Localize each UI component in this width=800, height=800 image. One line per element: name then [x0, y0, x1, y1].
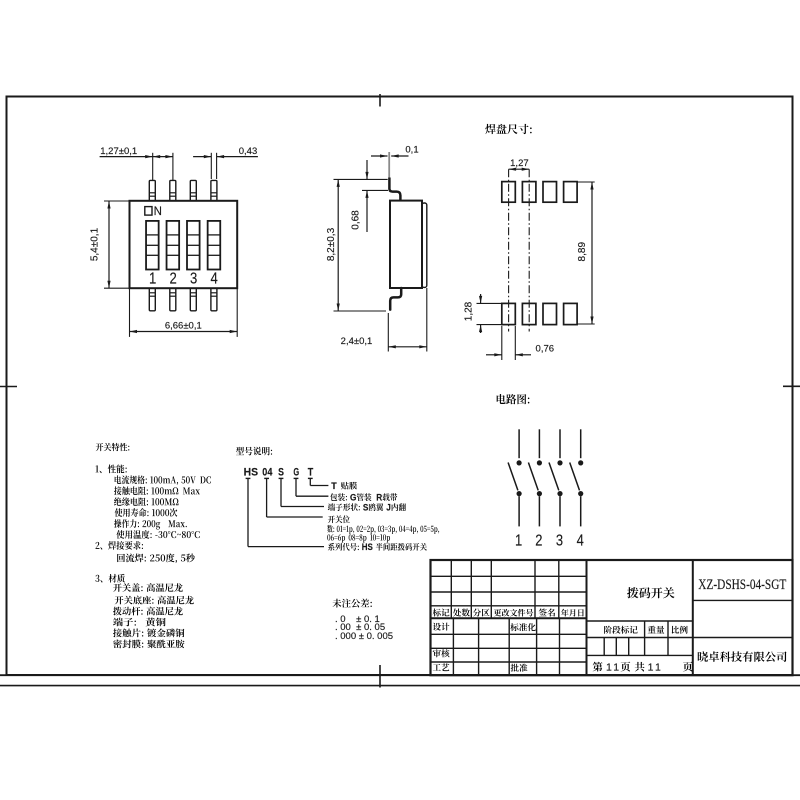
svg-text:8,89: 8,89	[577, 242, 588, 262]
svg-text:1: 1	[648, 661, 654, 673]
svg-text:2,4±0,1: 2,4±0,1	[341, 336, 373, 347]
svg-text:0,43: 0,43	[239, 146, 258, 157]
svg-text:2: 2	[170, 270, 177, 287]
svg-text:T: T	[308, 466, 314, 478]
svg-text:G: G	[350, 492, 357, 502]
svg-text:04: 04	[262, 466, 273, 478]
svg-text:1,28: 1,28	[463, 301, 474, 321]
svg-text:1: 1	[655, 661, 661, 673]
svg-text:XZ-DSHS-04-SGT: XZ-DSHS-04-SGT	[698, 577, 786, 593]
svg-text:3: 3	[190, 270, 197, 287]
svg-text:T: T	[331, 481, 337, 491]
svg-text:4: 4	[577, 532, 584, 549]
svg-text:R: R	[376, 492, 383, 502]
svg-text:1,27±0,1: 1,27±0,1	[100, 146, 137, 157]
svg-text:0,1: 0,1	[405, 145, 418, 156]
svg-text:3: 3	[556, 532, 563, 549]
svg-text:J: J	[386, 502, 391, 512]
svg-text:N: N	[154, 206, 162, 218]
svg-text:S: S	[363, 502, 369, 512]
svg-text:HS: HS	[244, 466, 258, 478]
svg-text:1: 1	[613, 661, 619, 673]
svg-text:2: 2	[535, 532, 542, 549]
svg-text:6,66±0,1: 6,66±0,1	[165, 320, 202, 331]
svg-text:1,27: 1,27	[510, 158, 529, 169]
svg-text:1: 1	[149, 270, 156, 287]
svg-text:1: 1	[606, 661, 612, 673]
svg-text:S: S	[278, 466, 284, 478]
svg-text:4: 4	[211, 270, 218, 287]
svg-text:5,4±0,1: 5,4±0,1	[90, 227, 101, 261]
svg-text:G: G	[293, 466, 299, 478]
svg-text:0,68: 0,68	[351, 210, 362, 230]
svg-text:. 000 ± 0. 005: . 000 ± 0. 005	[335, 631, 393, 642]
svg-text:8,2±0,3: 8,2±0,3	[326, 227, 337, 261]
svg-text:HS: HS	[362, 542, 373, 553]
svg-text:0,76: 0,76	[536, 343, 555, 354]
svg-text:1: 1	[515, 532, 522, 549]
